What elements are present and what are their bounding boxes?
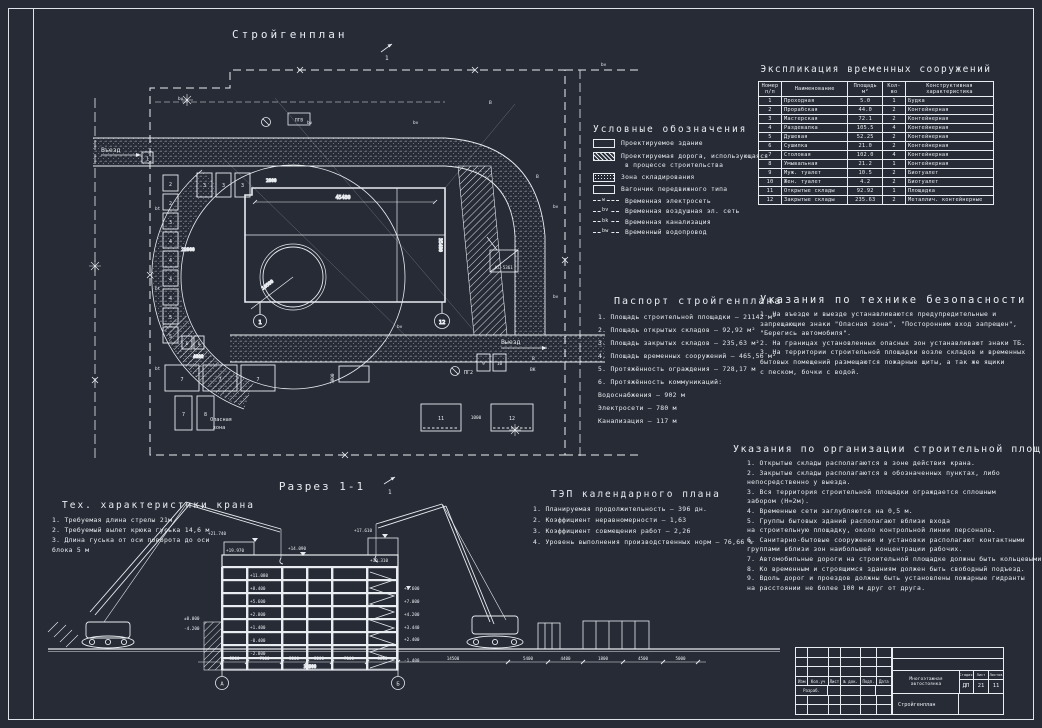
- svg-text:5: 5: [169, 315, 172, 321]
- exit-label: Выезд: [501, 338, 521, 346]
- svg-text:+17.610: +17.610: [354, 528, 373, 534]
- drawing-name: Стройгенплан: [893, 694, 959, 715]
- svg-text:7100: 7100: [259, 656, 270, 661]
- svg-text:bv: bv: [397, 324, 403, 330]
- safety-line: запрещающие знаки "Опасная зона", "Посто…: [760, 320, 1012, 330]
- passport-line: 1. Площадь строительной площадки — 21142…: [598, 311, 773, 324]
- table-row: 4 Раздевалка 105.5 4 Контейнерная: [759, 124, 994, 133]
- svg-text:2: 2: [169, 201, 172, 207]
- section-mark: 1: [388, 489, 392, 496]
- svg-text:bt: bt: [155, 366, 161, 372]
- gate-house-label: 1: [146, 157, 149, 163]
- svg-text:+14.090: +14.090: [288, 546, 307, 552]
- svg-text:3: 3: [241, 183, 244, 189]
- svg-text:9: 9: [482, 361, 485, 367]
- dim-2000: 2000: [266, 178, 277, 184]
- project-name: Многоэтажная автостоянка: [893, 671, 960, 693]
- site-org-line: 7. Автомобильные дороги на строительной …: [747, 555, 1025, 565]
- svg-text:Б: Б: [396, 682, 400, 688]
- site-org-title: Указания по организации строительной пло…: [733, 444, 1025, 455]
- building-height-dim: 35480: [437, 238, 443, 252]
- svg-text:5200: 5200: [377, 656, 388, 661]
- table-row: 3 Мастерская 72.1 2 Контейнерная: [759, 115, 994, 124]
- svg-text:4: 4: [169, 277, 172, 283]
- site-org-line: забором (Н=2м).: [747, 497, 1025, 507]
- safety-title: Указания по технике безопасности: [760, 294, 1012, 306]
- svg-text:1: 1: [258, 320, 261, 326]
- svg-text:+1.400: +1.400: [250, 625, 266, 631]
- svg-text:4: 4: [169, 258, 172, 264]
- svg-text:5000: 5000: [675, 656, 686, 661]
- svg-text:В: В: [489, 100, 492, 106]
- svg-text:3: 3: [222, 183, 225, 189]
- site-org-line: на расстоянии не более 100 м друг от дру…: [747, 584, 1025, 594]
- svg-text:3: 3: [169, 220, 172, 226]
- table-row: 5 Душевая 52.25 2 Контейнерная: [759, 133, 994, 142]
- legend-item-road: Проектируемая дорога, использующаяся: [593, 152, 773, 161]
- tep-line: 1. Планируемая продолжительность — 396 д…: [533, 504, 718, 515]
- svg-text:+19.310: +19.310: [370, 558, 389, 564]
- svg-text:bt: bt: [155, 206, 161, 212]
- title-block: Изм Кол.уч Лист № док. Подп. Дата Разраб…: [795, 647, 1004, 715]
- revision-header-row: Изм Кол.уч Лист № док. Подп. Дата: [796, 677, 892, 687]
- section-title-group: Разрез 1-1 1: [279, 477, 395, 496]
- pgv-label: ПГВ: [295, 118, 303, 124]
- danger-zone-label-2: зона: [213, 425, 226, 431]
- stage-value: ДП: [959, 680, 974, 693]
- dim-22000: 22000: [181, 247, 195, 253]
- site-org-line: 3. Вся территория строительной площадки …: [747, 488, 1025, 498]
- passport-line: 6. Протяжённость коммуникаций:: [598, 376, 773, 389]
- crane-spec-line: 2. Требуемый вылет крюка гуська 14,6 м: [52, 525, 232, 535]
- projected-building: 45480 35480 2000 22000 4000 1 12: [181, 178, 449, 360]
- pg2-label: ПГ2: [464, 370, 473, 376]
- crane-spec-line: 3. Длина гуська от оси поворота до оси: [52, 535, 232, 545]
- total-dim: 34900: [304, 664, 317, 669]
- svg-text:А: А: [220, 682, 224, 688]
- explication-table: Номер п/п Наименование Площадь м² Кол-во…: [758, 81, 994, 205]
- svg-text:bv: bv: [553, 294, 559, 300]
- sheets-label: Листов: [989, 671, 1003, 679]
- safety-line: "Берегись автомобиля".: [760, 329, 1012, 339]
- drawing-sheet: Стройгенплан: [0, 0, 1042, 728]
- svg-text:2: 2: [169, 182, 172, 188]
- svg-text:+4.200: +4.200: [404, 612, 420, 618]
- crane-spec-line: 1. Требуемая длина стрелы 21м: [52, 515, 232, 525]
- svg-text:+8.600: +8.600: [404, 586, 420, 592]
- stage-label: Стадия: [959, 671, 974, 679]
- svg-text:7100: 7100: [344, 656, 355, 661]
- passport-line: 2. Площадь открытых складов — 92,92 м²: [598, 324, 773, 337]
- table-row: 2 Прорабская 44.0 2 Контейнерная: [759, 106, 994, 115]
- svg-text:+2.400: +2.400: [404, 637, 420, 643]
- tep-line: 4. Уровень выполнения производственных н…: [533, 537, 718, 548]
- legend-item-water: bw Временный водопровод: [593, 229, 773, 236]
- legend-item-air: bv Временная воздушная эл. сеть: [593, 208, 773, 215]
- table-row: 7 Столовая 102.0 4 Контейнерная: [759, 151, 994, 160]
- left-bank-hatch: [48, 622, 78, 647]
- site-org-line: 4. Временные сети заглубляются на 0,5 м.: [747, 507, 1025, 517]
- svg-text:В: В: [532, 356, 535, 362]
- table-row: 8 Умывальная 21.2 1 Контейнерная: [759, 160, 994, 169]
- section-title: Разрез 1-1: [279, 480, 365, 493]
- table-row: 9 Муж. туалет 10.5 2 Биотуалет: [759, 169, 994, 178]
- dim-7000: 7000: [330, 373, 336, 384]
- sewer-line-icon: bk: [593, 221, 619, 223]
- site-org-line: 6. Санитарно-бытовые сооружения и устано…: [747, 536, 1025, 546]
- svg-text:+3.440: +3.440: [404, 625, 420, 631]
- svg-text:11: 11: [438, 416, 444, 422]
- svg-text:4: 4: [169, 296, 172, 302]
- safety-line: 2. На границах установленных опасных зон…: [760, 339, 1012, 349]
- svg-text:-4.200: -4.200: [184, 626, 200, 632]
- svg-text:8: 8: [204, 412, 207, 418]
- ground-and-dims: 5200 7100 5200 5200 7100 5200 14500 5400…: [48, 649, 780, 690]
- table-row: 6 Сушилка 21.0 2 Контейнерная: [759, 142, 994, 151]
- svg-text:7: 7: [256, 377, 259, 383]
- site-plan-drawing: Въезд Выезд: [45, 40, 645, 485]
- svg-text:+11.080: +11.080: [250, 573, 269, 579]
- table-row: 10 Жен. туалет 4.2 2 Биотуалет: [759, 178, 994, 187]
- passport-line: 3. Площадь закрытых складов — 235,63 м²: [598, 337, 773, 350]
- explication-block: Экспликация временных сооружений Номер п…: [758, 64, 994, 205]
- svg-text:bv: bv: [307, 120, 313, 126]
- legend-item-wagon: Вагончик передвижного типа: [593, 185, 773, 194]
- section-axes: А Б: [216, 670, 405, 690]
- site-org-line: группами вблизи зон наибольшей концентра…: [747, 545, 1025, 555]
- svg-text:7: 7: [180, 377, 183, 383]
- svg-text:1: 1: [385, 55, 389, 62]
- razrab-cell: Разраб.: [796, 686, 828, 695]
- passport-line: Водоснабжения — 902 м: [598, 389, 773, 402]
- svg-text:В: В: [536, 174, 539, 180]
- plan-axis-12: 12: [435, 302, 450, 329]
- safety-line: с песком, бочки с водой.: [760, 368, 1012, 378]
- svg-text:7: 7: [218, 377, 221, 383]
- svg-text:+5.600: +5.600: [250, 599, 266, 605]
- site-org-line: 1. Открытые склады располагаются в зоне …: [747, 459, 1025, 469]
- svg-text:bv: bv: [413, 120, 419, 126]
- svg-text:5400: 5400: [523, 656, 534, 661]
- svg-text:12: 12: [509, 416, 515, 422]
- svg-text:4400: 4400: [560, 656, 571, 661]
- passport-line: 4. Площадь временных сооружений — 465,56…: [598, 350, 773, 363]
- tep-line: 3. Коэффициент совмещения работ — 2,26: [533, 526, 718, 537]
- passport-line: Канализация — 117 м: [598, 415, 773, 428]
- svg-text:1800: 1800: [598, 656, 609, 661]
- svg-text:±0.000: ±0.000: [184, 616, 200, 622]
- explication-title: Экспликация временных сооружений: [758, 64, 994, 75]
- svg-text:5200: 5200: [314, 656, 325, 661]
- svg-text:3: 3: [203, 183, 206, 189]
- safety-line: бытовых помещений размещаются пожарные щ…: [760, 358, 1012, 368]
- svg-text:-1.400: -1.400: [404, 658, 420, 664]
- site-org-line: 8. Ко временным и строящимся зданиям дол…: [747, 565, 1025, 575]
- svg-text:-0.400: -0.400: [250, 638, 266, 644]
- safety-block: Указания по технике безопасности 1. На в…: [760, 294, 1012, 377]
- title-block-revision-grid: Изм Кол.уч Лист № док. Подп. Дата Разраб…: [796, 648, 892, 714]
- svg-text:bt: bt: [155, 286, 161, 292]
- site-org-line: 2. Закрытые склады располагаются в обозн…: [747, 469, 1025, 479]
- svg-text:6: 6: [186, 341, 189, 347]
- legend-block: Условные обозначения Проектируемое здани…: [593, 124, 773, 240]
- legend-item-power: w Временная электросеть: [593, 198, 773, 205]
- safety-line: 1. На въезде и выезде устанавливаются пр…: [760, 310, 1012, 320]
- dim-labels: 5200 7100 5200 5200 7100 5200 14500 5400…: [229, 656, 686, 661]
- site-org-line: 5. Группы бытовых зданий располагают вбл…: [747, 517, 1025, 527]
- sheet-label: Лист: [974, 671, 989, 679]
- crane-spec-line: блока 5 м: [52, 545, 232, 555]
- svg-text:4: 4: [169, 239, 172, 245]
- sheets-total: 11: [989, 680, 1003, 693]
- crane-specs-title: Тех. характеристики крана: [62, 500, 232, 511]
- table-row: 12 Закрытые склады 235.63 2 Металлич. ко…: [759, 196, 994, 205]
- danger-zone-label-1: Опасная: [210, 417, 232, 423]
- tep-block: ТЭП календарного плана 1. Планируемая пр…: [533, 489, 718, 548]
- svg-text:12: 12: [439, 320, 446, 326]
- svg-text:5200: 5200: [289, 656, 300, 661]
- building-swatch-icon: [593, 139, 615, 148]
- legend-title: Условные обозначения: [593, 124, 773, 135]
- air-line-icon: bv: [593, 211, 619, 213]
- svg-text:+7.000: +7.000: [404, 599, 420, 605]
- table-row: 1 Проходная 5.0 1 Будка: [759, 97, 994, 106]
- sheet-number: 21: [974, 680, 989, 693]
- svg-text:bv: bv: [553, 204, 559, 210]
- svg-text:5200: 5200: [229, 656, 240, 661]
- passport-line: Электросети — 780 м: [598, 402, 773, 415]
- svg-text:bv: bv: [178, 96, 184, 102]
- svg-text:bv: bv: [601, 62, 607, 68]
- legend-item-storage: Зона складирования: [593, 173, 773, 182]
- svg-text:10: 10: [497, 361, 503, 367]
- entry-label: Въезд: [101, 146, 121, 154]
- passport-title: Паспорт стройгенплана: [614, 296, 773, 307]
- passport-line: 5. Протяжённость ограждения — 728,17 м: [598, 363, 773, 376]
- dim-1000: 1000: [471, 415, 482, 421]
- open-storage: 11 12 1000: [421, 404, 533, 431]
- legend-item-sewer: bk Временная канализация: [593, 219, 773, 226]
- storage-swatch-icon: [593, 173, 615, 182]
- legend-item-building: Проектируемое здание: [593, 139, 773, 148]
- svg-text:ВК: ВК: [530, 367, 536, 373]
- title-block-main: Многоэтажная автостоянка Стадия Лист Лис…: [892, 648, 1003, 714]
- svg-text:7: 7: [182, 412, 185, 418]
- tep-line: 2. Коэффициент неравномерности — 1,63: [533, 515, 718, 526]
- svg-text:4500: 4500: [638, 656, 649, 661]
- svg-text:+2.800: +2.800: [250, 612, 266, 618]
- site-org-block: Указания по организации строительной пло…: [733, 444, 1025, 593]
- power-line-icon: w: [593, 200, 619, 202]
- water-line-icon: bw: [593, 232, 619, 234]
- passport-block: Паспорт стройгенплана 1. Площадь строите…: [598, 296, 773, 428]
- svg-text:+8.400: +8.400: [250, 586, 266, 592]
- svg-text:6: 6: [198, 341, 201, 347]
- svg-text:5: 5: [169, 334, 172, 340]
- crane-model-label: КС-5361: [495, 265, 513, 270]
- wagon-swatch-icon: [593, 185, 615, 194]
- section-cut-mark-top: 1: [381, 44, 392, 62]
- dim-4000: 4000: [193, 354, 204, 360]
- tep-title: ТЭП календарного плана: [551, 489, 718, 500]
- building-width-dim: 45480: [335, 195, 350, 201]
- svg-text:14500: 14500: [447, 656, 460, 661]
- crane-specs-block: Тех. характеристики крана 1. Требуемая д…: [52, 500, 232, 555]
- table-row: 11 Открытые склады 92.92 1 Площадка: [759, 187, 994, 196]
- site-org-line: 9. Вдоль дорог и проездов должны быть ус…: [747, 574, 1025, 584]
- site-org-line: на строительную площадку, около контроль…: [747, 526, 1025, 536]
- road-swatch-icon: [593, 152, 615, 161]
- safety-line: 3. На территории строительной площадки в…: [760, 348, 1012, 358]
- site-org-line: непосредственно у выезда.: [747, 478, 1025, 488]
